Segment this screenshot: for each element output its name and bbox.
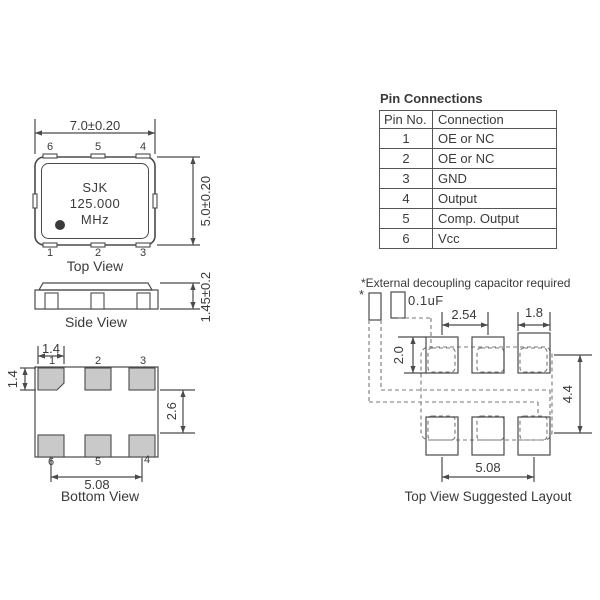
pin-number: 6 xyxy=(380,229,433,249)
pin-number: 5 xyxy=(380,209,433,229)
pin-connection: Comp. Output xyxy=(433,209,557,229)
table-header-row: Pin No. Connection xyxy=(380,111,557,129)
pin-connections-table: Pin No. Connection 1 OE or NC 2 OE or NC… xyxy=(379,110,557,249)
top-view-pin5-label: 5 xyxy=(91,141,105,153)
bottom-view-row-gap-dim: 2.6 xyxy=(165,400,179,422)
pin-number: 1 xyxy=(380,129,433,149)
table-row: 4 Output xyxy=(380,189,557,209)
marking-brand: SJK xyxy=(55,181,135,195)
bottom-view-pin4-label: 4 xyxy=(140,454,154,466)
top-view-pin4-label: 4 xyxy=(136,141,150,153)
side-view-height-dim: 1.45±0.2 xyxy=(199,271,213,323)
top-view-pin1-label: 1 xyxy=(43,247,57,259)
gnd-trace-bar xyxy=(369,293,381,320)
connection-header: Connection xyxy=(433,111,557,129)
bottom-pad-6 xyxy=(38,435,64,457)
capacitor-asterisk: * xyxy=(359,288,365,302)
pin-no-header: Pin No. xyxy=(380,111,433,129)
pin-table-title: Pin Connections xyxy=(380,91,483,106)
bottom-view-pin5-label: 5 xyxy=(91,456,105,468)
layout-pitch-dim: 2.54 xyxy=(444,308,484,322)
land-pad-bottom-1 xyxy=(426,417,458,455)
side-view-label: Side View xyxy=(56,315,136,330)
bottom-view-pin3-label: 3 xyxy=(136,355,150,367)
pin-connection: GND xyxy=(433,169,557,189)
top-view-height-dim: 5.0±0.20 xyxy=(199,173,213,229)
table-row: 2 OE or NC xyxy=(380,149,557,169)
pin-connection: Vcc xyxy=(433,229,557,249)
pin-number: 4 xyxy=(380,189,433,209)
bottom-pad-2 xyxy=(85,368,111,390)
top-view-pin6-label: 6 xyxy=(43,141,57,153)
bottom-pad-3 xyxy=(129,368,155,390)
top-view-pin3-label: 3 xyxy=(136,247,150,259)
component-outline-dashed xyxy=(421,347,552,440)
land-pad-bottom-3 xyxy=(518,417,550,455)
table-row: 3 GND xyxy=(380,169,557,189)
layout-pad-width-dim: 1.8 xyxy=(519,306,549,320)
oscillator-drawing-svg xyxy=(0,0,600,600)
bottom-pad-5 xyxy=(85,435,111,457)
land-pad-top-3 xyxy=(518,333,550,373)
bottom-view-pad-height-dim: 1.4 xyxy=(6,369,20,389)
side-view-lid xyxy=(39,283,152,290)
marking-unit: MHz xyxy=(55,213,135,227)
pin-connection: OE or NC xyxy=(433,149,557,169)
table-row: 6 Vcc xyxy=(380,229,557,249)
bottom-view-pin6-label: 6 xyxy=(44,456,58,468)
top-view-label: Top View xyxy=(55,259,135,274)
pin-connection: Output xyxy=(433,189,557,209)
top-view-width-dim: 7.0±0.20 xyxy=(55,119,135,133)
datasheet-drawing-page: 7.0±0.20 6 5 4 1 2 3 SJK 125.000 MHz Top… xyxy=(0,0,600,600)
table-row: 1 OE or NC xyxy=(380,129,557,149)
layout-col-span-dim: 5.08 xyxy=(463,461,513,475)
bottom-view-pin2-label: 2 xyxy=(91,355,105,367)
pin-number: 2 xyxy=(380,149,433,169)
table-row: 5 Comp. Output xyxy=(380,209,557,229)
layout-row-span-dim: 4.4 xyxy=(561,382,575,406)
decoupling-note: *External decoupling capacitor required xyxy=(361,277,570,290)
bottom-view-pin1-label: 1 xyxy=(45,355,59,367)
pin-connection: OE or NC xyxy=(433,129,557,149)
layout-pad-height-dim: 2.0 xyxy=(392,343,406,367)
side-view-drawing xyxy=(35,283,200,309)
capacitor-value: 0.1uF xyxy=(408,294,444,308)
bottom-view-label: Bottom View xyxy=(58,489,142,504)
bottom-pad-1 xyxy=(38,368,64,390)
marking-frequency: 125.000 xyxy=(55,197,135,211)
suggested-layout-label: Top View Suggested Layout xyxy=(398,490,578,505)
capacitor-body xyxy=(391,292,405,318)
pin-number: 3 xyxy=(380,169,433,189)
